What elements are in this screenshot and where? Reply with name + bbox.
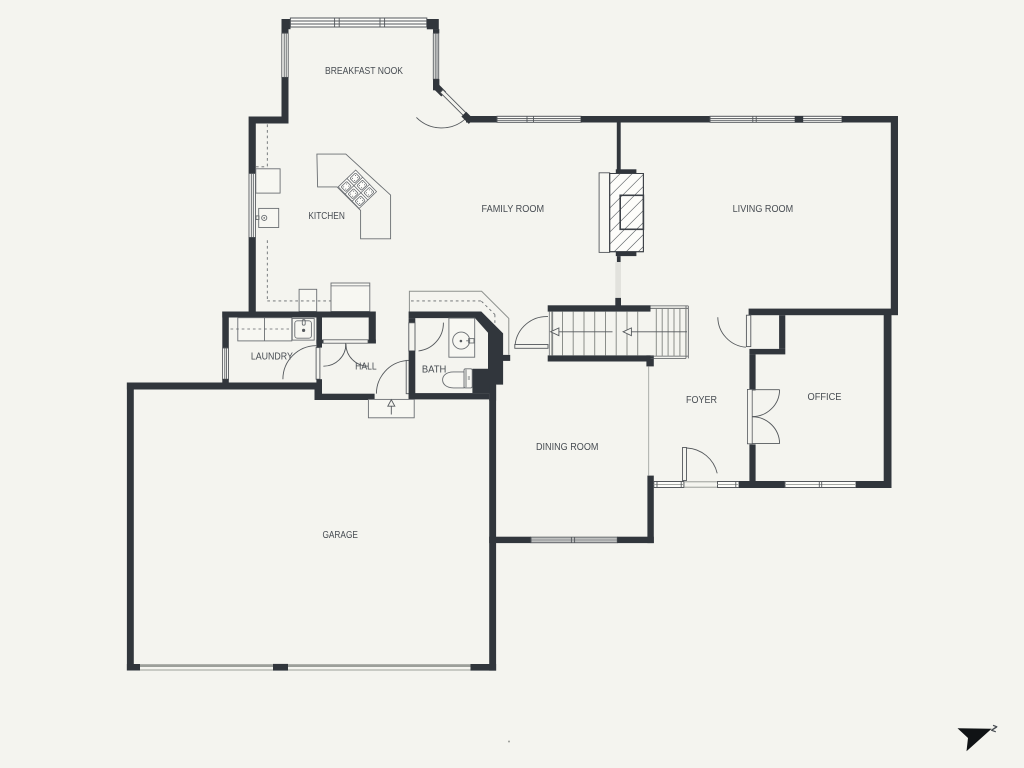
svg-text:LIVING ROOM: LIVING ROOM — [733, 204, 794, 215]
svg-text:HALL: HALL — [355, 361, 377, 372]
svg-text:KITCHEN: KITCHEN — [308, 211, 345, 222]
svg-text:LAUNDRY: LAUNDRY — [251, 351, 293, 362]
svg-text:BREAKFAST NOOK: BREAKFAST NOOK — [325, 66, 403, 77]
svg-text:OFFICE: OFFICE — [808, 392, 842, 403]
svg-text:FOYER: FOYER — [686, 395, 717, 406]
svg-text:FAMILY ROOM: FAMILY ROOM — [482, 204, 545, 215]
svg-text:DINING ROOM: DINING ROOM — [536, 442, 599, 453]
svg-text:BATH: BATH — [422, 364, 447, 375]
svg-text:GARAGE: GARAGE — [322, 530, 358, 541]
